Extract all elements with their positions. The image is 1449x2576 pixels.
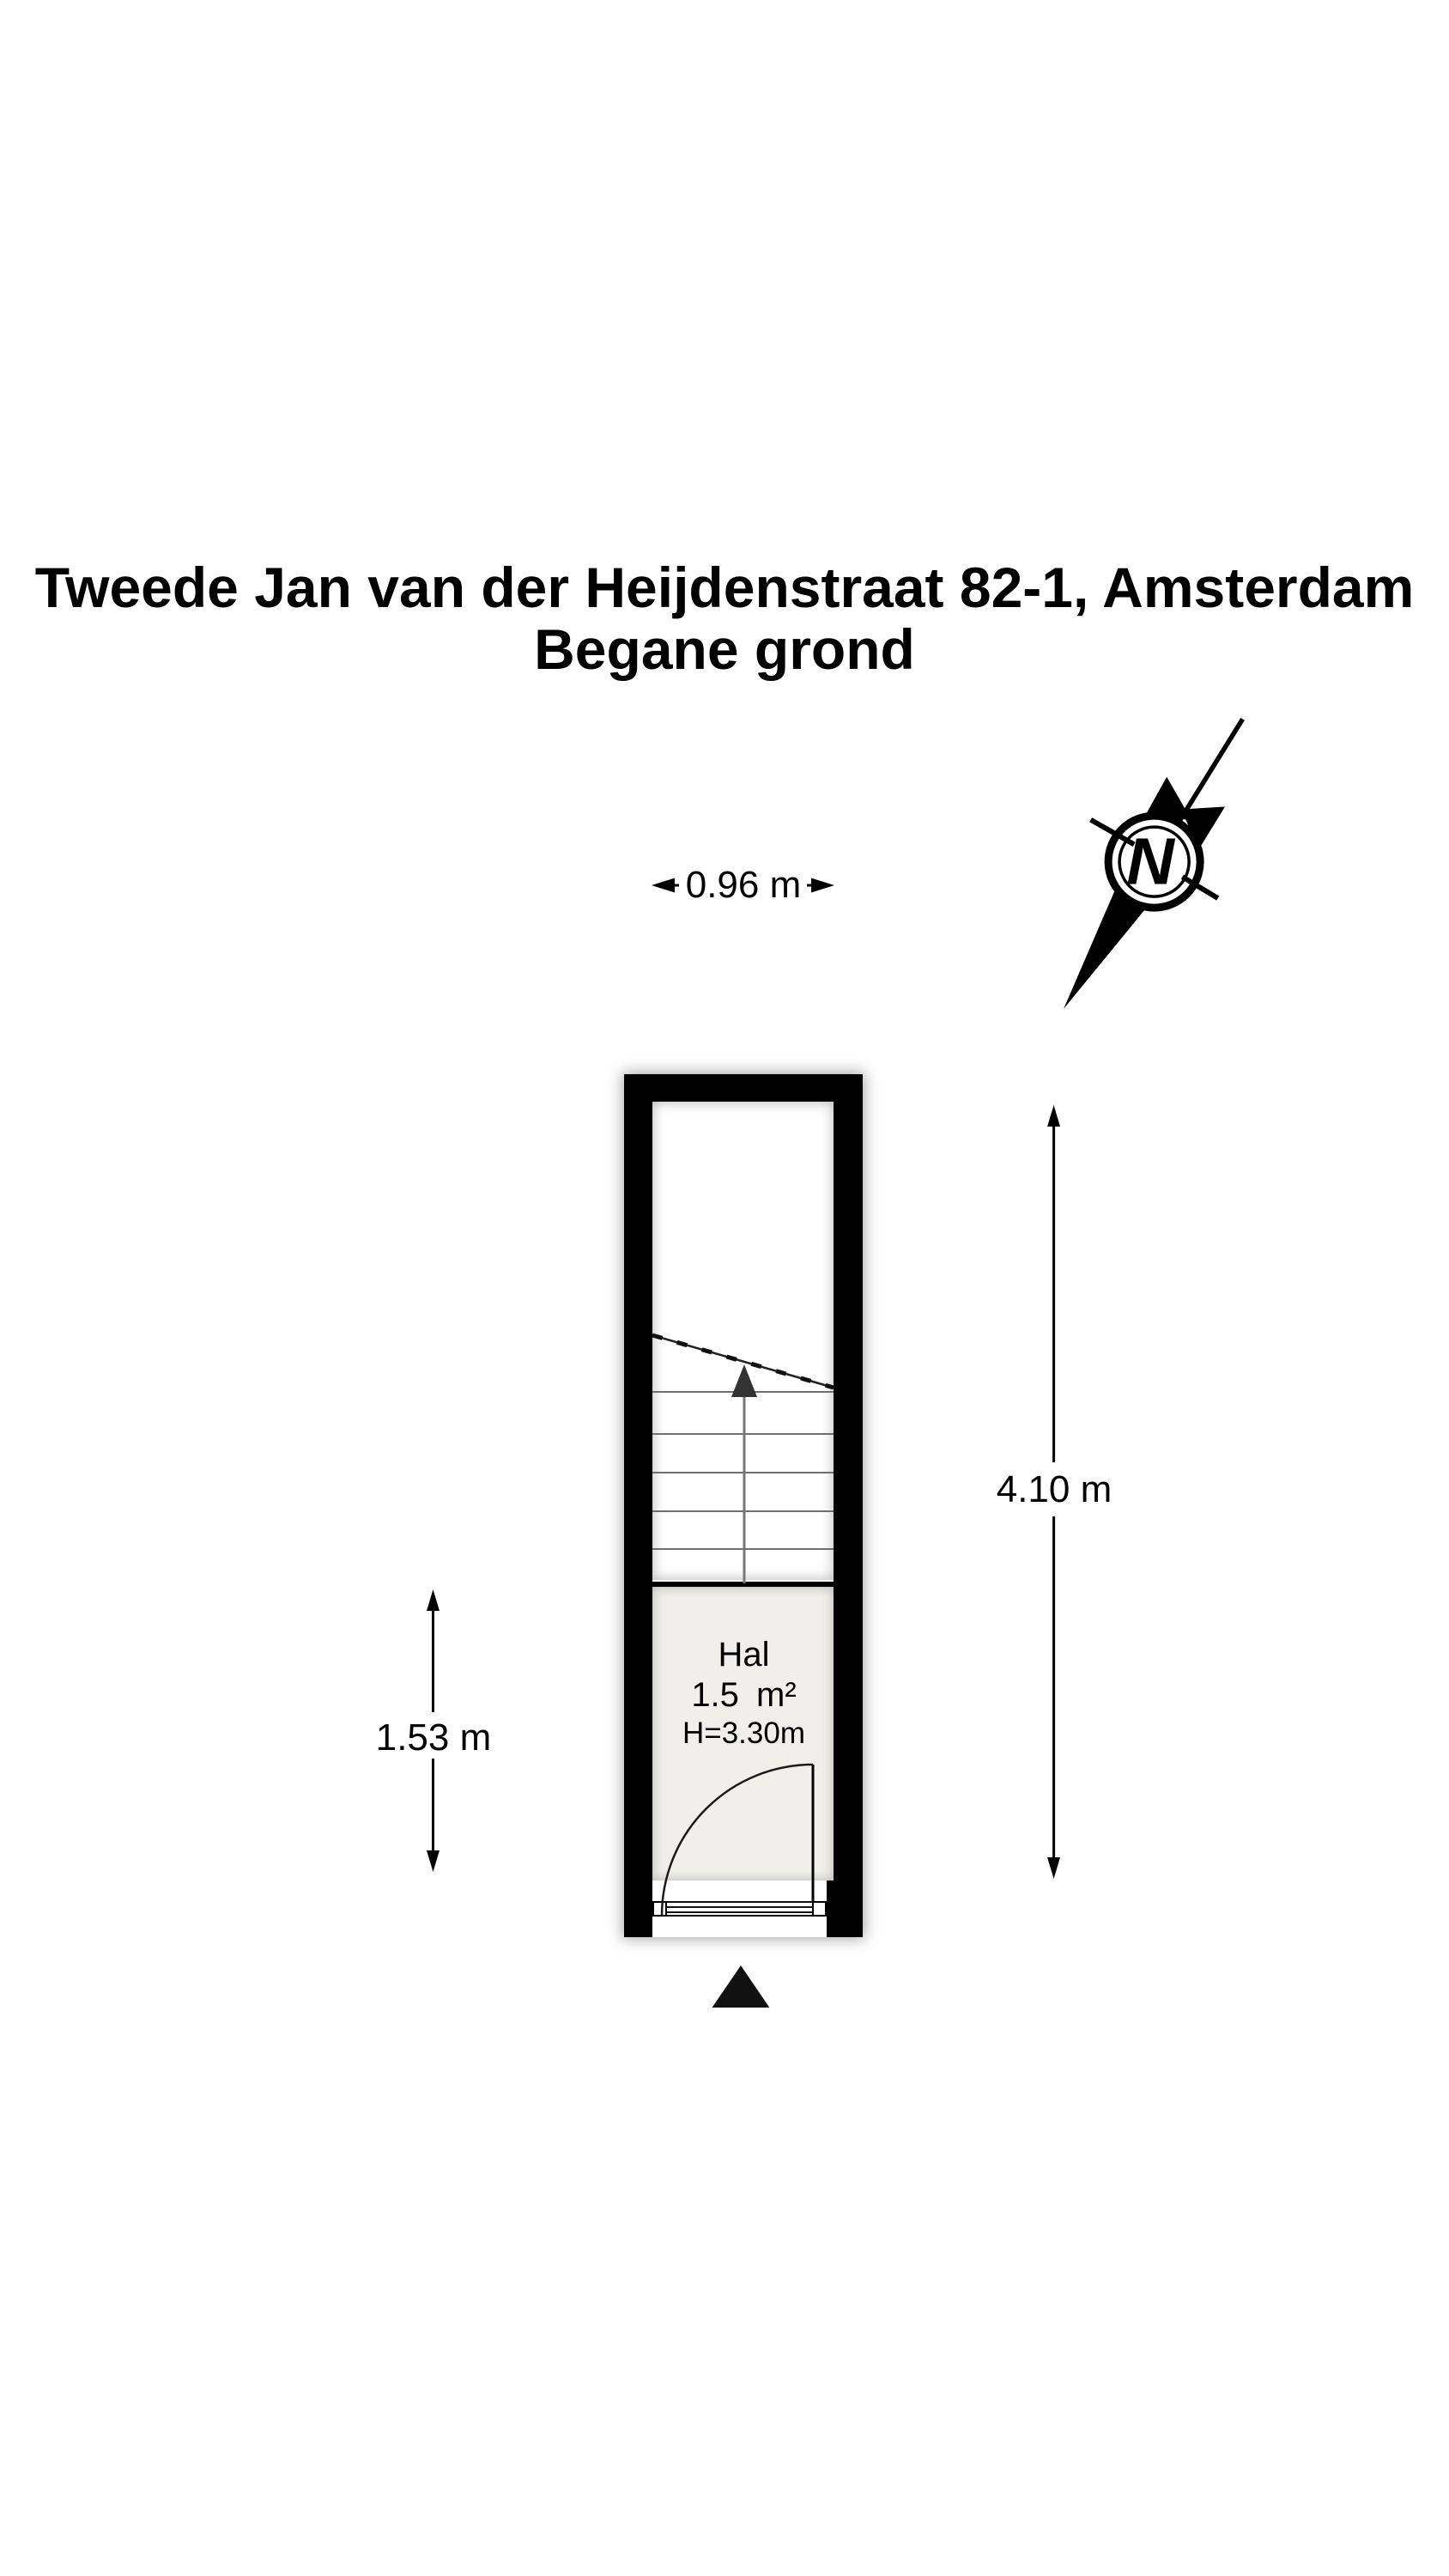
svg-text:N: N: [1126, 825, 1175, 899]
